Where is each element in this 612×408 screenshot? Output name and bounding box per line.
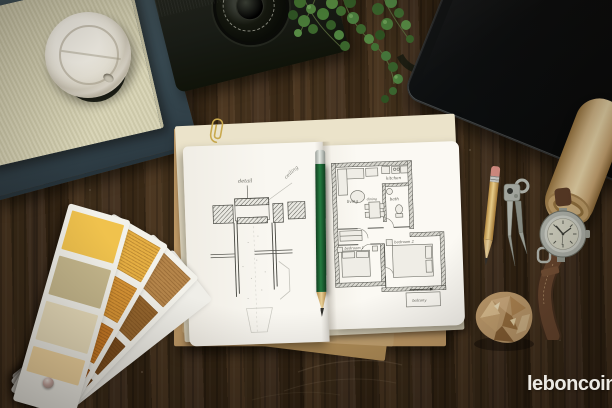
swatch-front-yellow xyxy=(61,210,124,263)
desk-photo: detail ceiling xyxy=(0,0,612,408)
swatch-front-cream xyxy=(35,301,98,354)
watch-strap-top xyxy=(554,187,572,207)
watch-crown xyxy=(585,230,590,238)
label-balcony: balcony xyxy=(412,298,427,303)
pencil-lead-tip xyxy=(484,258,488,266)
label-dining: dining xyxy=(367,197,377,201)
swatch-front-apricot xyxy=(26,346,85,386)
green-pencil-lead xyxy=(320,308,324,317)
color-swatch-fan xyxy=(0,200,238,408)
label-bedroom1: bedroom 1 xyxy=(344,246,364,251)
floor-plan: living kitchen bath dining bedroom 1 bed… xyxy=(325,147,459,323)
label-kitchen: kitchen xyxy=(386,175,402,181)
label-living: living xyxy=(347,199,359,204)
green-pencil xyxy=(314,150,327,318)
plant-leaves xyxy=(288,0,414,103)
green-pencil-cap xyxy=(315,150,325,164)
detail-callout-label: detail xyxy=(238,178,253,185)
label-bath: bath xyxy=(390,196,400,201)
label-bedroom2: bedroom 2 xyxy=(394,240,414,245)
green-pencil-body xyxy=(315,164,326,292)
crumpled-paper-ball xyxy=(466,286,540,354)
ceiling-diagonal-label: ceiling xyxy=(283,165,300,181)
leboncoin-watermark: leboncoin xyxy=(527,373,607,396)
sip-hole xyxy=(102,72,116,84)
swatch-front-khaki xyxy=(48,256,111,309)
coffee-cup-lid xyxy=(45,12,131,98)
